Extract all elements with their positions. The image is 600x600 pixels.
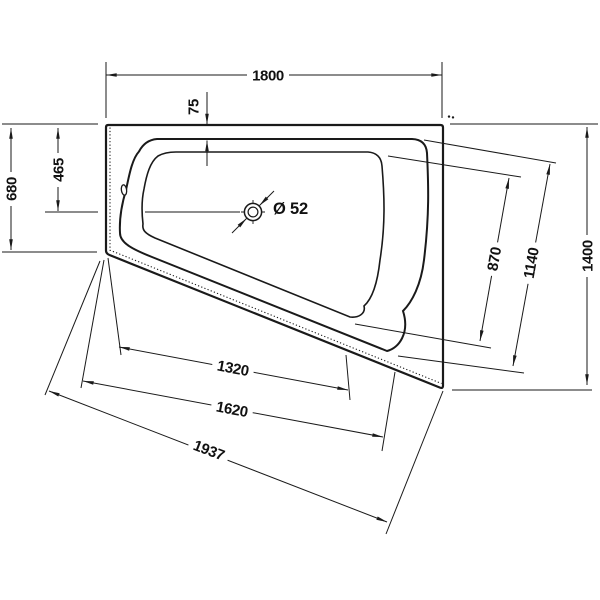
- apron-edge-dotted-line: [110, 128, 442, 384]
- dim-right-basin-label: 870: [484, 246, 505, 272]
- drain-diameter-label: Ø 52: [273, 200, 308, 218]
- drawing-canvas: 1800 75 680 465 870 1140 1400 1320: [0, 0, 600, 600]
- dim-drain-from-top-label: 465: [50, 158, 67, 182]
- dimension-labels: 1800 75 680 465 870 1140 1400 1320: [3, 67, 596, 466]
- basin-outline: [142, 152, 384, 317]
- dim-rim-width-label: 75: [185, 99, 202, 115]
- dim-right-depth-label: 1400: [579, 240, 596, 272]
- extension-lines: [2, 62, 598, 534]
- dim-right-rim-label: 1140: [521, 246, 543, 279]
- bathtub-dimension-diagram: 1800 75 680 465 870 1140 1400 1320: [0, 0, 600, 600]
- dim-width-top-label: 1800: [252, 67, 284, 84]
- dim-front-edge-label: 1937: [191, 437, 227, 464]
- dim-left-depth-label: 680: [3, 177, 20, 201]
- dim-rim-bottom-label: 1620: [215, 399, 249, 422]
- dim-basin-bottom-label: 1320: [216, 358, 250, 381]
- reference-dots: [448, 115, 454, 118]
